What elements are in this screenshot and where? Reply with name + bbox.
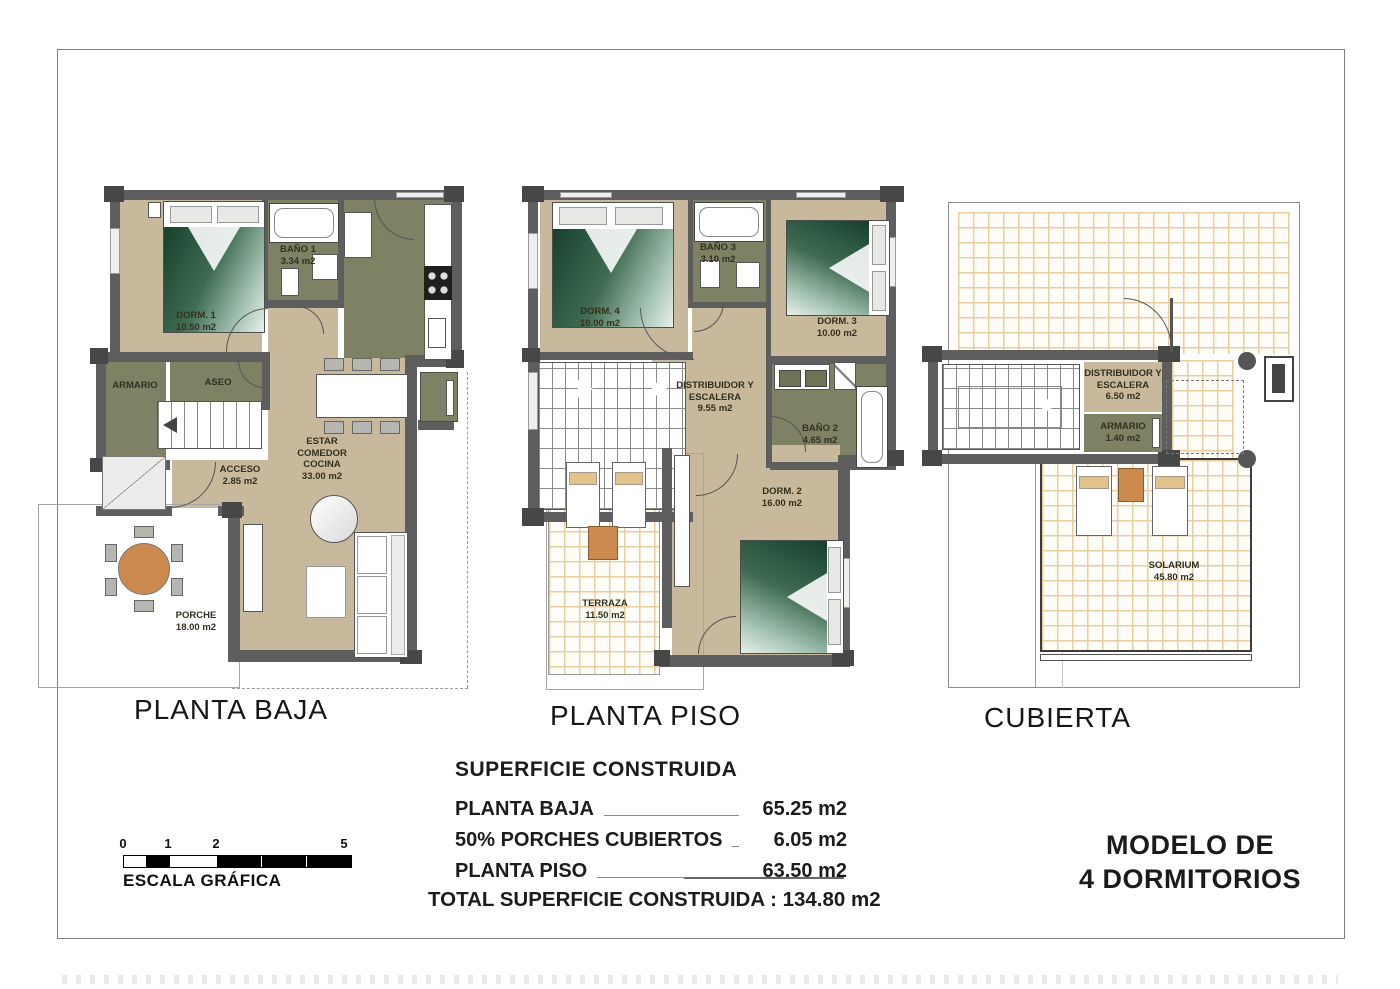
lounger-headrest: [1079, 476, 1109, 489]
room-name: ARMARIO: [1084, 421, 1162, 433]
chair: [171, 544, 183, 562]
solarium-tiled-floor: [1040, 458, 1252, 652]
room-name: DISTRIBUIDOR Y ESCALERA: [1082, 368, 1164, 391]
model-title-line1: MODELO DE: [1058, 828, 1322, 862]
wall: [766, 198, 771, 360]
bathtub-basin: [861, 391, 883, 463]
room-label-dorm4: DORM. 4 10.00 m2: [560, 306, 640, 329]
pillow: [872, 225, 886, 265]
room-area: 16.00 m2: [740, 498, 824, 510]
leader-line: [604, 815, 739, 816]
room-label-solarium: SOLARIUM 45.80 m2: [1128, 560, 1220, 583]
bathtub-basin: [699, 207, 759, 237]
room-label-bano3: BAÑO 3 3.10 m2: [684, 242, 752, 265]
rug: [306, 566, 346, 618]
round-table: [118, 543, 170, 595]
wall-corner: [444, 186, 464, 202]
wall: [928, 350, 1172, 360]
pillow: [559, 207, 607, 225]
room-label-estar: ESTAR COMEDOR COCINA 33.00 m2: [282, 436, 362, 482]
scale-tick-label: 5: [337, 836, 351, 851]
room-name: DISTRIBUIDOR Y ESCALERA: [670, 380, 760, 403]
entry-canopy: [102, 456, 166, 510]
sun-lounger-icon: [1152, 466, 1188, 536]
bathtub-icon: [694, 202, 764, 242]
room-name: DORM. 4: [560, 306, 640, 318]
room-name: DORM. 3: [796, 316, 878, 328]
ground-dashed-line: [232, 688, 468, 689]
wall: [452, 190, 462, 362]
sun-lounger-icon: [612, 462, 646, 528]
wall: [110, 190, 120, 362]
chair: [134, 600, 154, 612]
fridge-icon: [344, 212, 372, 258]
chair: [324, 421, 344, 434]
room-label-bano2: BAÑO 2 4.65 m2: [784, 423, 856, 446]
bed-fold: [829, 244, 869, 292]
room-label-armario: ARMARIO 1.40 m2: [1084, 421, 1162, 444]
room-name: DORM. 2: [740, 486, 824, 498]
model-title: MODELO DE 4 DORMITORIOS: [1058, 828, 1322, 896]
stair-direction-arrow: [163, 417, 177, 433]
room-area: 10.50 m2: [148, 322, 244, 334]
roof-edge-line: [1035, 460, 1036, 688]
room-name: PORCHE: [152, 610, 240, 622]
summary-row-label: 50% PORCHES CUBIERTOS: [455, 829, 722, 852]
pillow: [217, 206, 259, 223]
summary-total: TOTAL SUPERFICIE CONSTRUIDA : 134.80 m2: [428, 888, 881, 912]
room-name: BAÑO 1: [262, 244, 334, 256]
chair: [324, 358, 344, 371]
bathtub-icon: [856, 386, 888, 468]
vanity-double-sink: [774, 364, 830, 390]
wall-corner: [880, 186, 904, 202]
room-area: 10.00 m2: [560, 318, 640, 330]
pergola-dashed-outline: [1166, 380, 1244, 454]
lounger-headrest: [615, 472, 643, 485]
coffee-table: [310, 495, 358, 543]
room-label-distribuidor: DISTRIBUIDOR Y ESCALERA 9.55 m2: [670, 380, 760, 415]
sink-icon: [805, 370, 827, 387]
wall-corner: [922, 346, 942, 362]
wall-corner: [654, 650, 670, 666]
solarium-edge: [1040, 654, 1252, 661]
summary-header: SUPERFICIE CONSTRUIDA: [455, 758, 737, 782]
tv-unit: [243, 524, 263, 612]
room-area: 11.50 m2: [566, 610, 644, 622]
room-label-dorm2: DORM. 2 16.00 m2: [740, 486, 824, 509]
wall-corner: [522, 186, 544, 202]
sofa: [354, 532, 408, 658]
summary-row-value: 63.50 m2: [747, 860, 847, 883]
leader-line: [732, 846, 739, 847]
chair: [134, 526, 154, 538]
room-label-aseo: ASEO: [194, 377, 242, 389]
summary-row-label: PLANTA PISO: [455, 860, 587, 883]
sofa-back: [391, 535, 405, 655]
room-name: ARMARIO: [104, 380, 166, 392]
sun-lounger-icon: [1076, 466, 1112, 536]
plan-title-planta-baja: PLANTA BAJA: [134, 694, 328, 726]
room-area: 9.55 m2: [670, 403, 760, 415]
stair-direction-arrow: [652, 380, 667, 398]
wall: [228, 506, 240, 662]
chair: [105, 578, 117, 596]
room-label-dorm1: DORM. 1 10.50 m2: [148, 310, 244, 333]
summary-row-label: PLANTA BAJA: [455, 798, 594, 821]
wall: [766, 356, 896, 364]
scale-label: ESCALA GRÁFICA: [123, 871, 281, 891]
window-slot: [110, 228, 120, 274]
sofa-cushion: [357, 576, 387, 614]
chair: [352, 358, 372, 371]
chair: [171, 578, 183, 596]
roof-post: [1238, 352, 1256, 370]
room-label-acceso: ACCESO 2.85 m2: [198, 464, 282, 487]
room-area: 45.80 m2: [1128, 572, 1220, 584]
wall: [662, 448, 672, 628]
room-name: BAÑO 2: [784, 423, 856, 435]
room-area: 18.00 m2: [152, 622, 240, 634]
room-name: ACCESO: [198, 464, 282, 476]
scale-segment: [217, 856, 351, 867]
scale-tick: [261, 856, 262, 867]
room-name: ESTAR COMEDOR COCINA: [282, 436, 362, 471]
exterior-closet-door: [446, 380, 454, 416]
washer-icon: [834, 362, 856, 390]
bed-fold: [787, 573, 827, 621]
wall: [660, 655, 850, 667]
scale-segment: [169, 856, 217, 867]
plan-title-cubierta: CUBIERTA: [984, 702, 1131, 734]
bed-icon: [786, 220, 890, 316]
room-area: 10.00 m2: [796, 328, 878, 340]
room-label-terraza: TERRAZA 11.50 m2: [566, 598, 644, 621]
wall-corner: [522, 508, 544, 526]
room-name: ASEO: [194, 377, 242, 389]
wall-corner: [522, 348, 540, 362]
solar-panel-icon: [1264, 356, 1294, 402]
summary-row: 50% PORCHES CUBIERTOS 6.05 m2: [455, 821, 847, 852]
room-area: 3.10 m2: [684, 254, 752, 266]
nightstand: [148, 202, 161, 218]
scale-tick: [306, 856, 307, 867]
room-label-dorm3: DORM. 3 10.00 m2: [796, 316, 878, 339]
room-area: 33.00 m2: [282, 471, 362, 483]
bathtub-icon: [269, 203, 339, 243]
sink-icon: [736, 262, 760, 288]
chair: [380, 358, 400, 371]
scale-tick-label: 1: [161, 836, 175, 851]
room-area: 4.65 m2: [784, 435, 856, 447]
wall-corner: [90, 348, 108, 364]
pillow: [828, 599, 841, 645]
scale-tick-label: 2: [209, 836, 223, 851]
dining-table: [316, 374, 408, 418]
solar-panel-cell: [1272, 364, 1285, 393]
summary-row: PLANTA BAJA 65.25 m2: [455, 790, 847, 821]
bathtub-basin: [274, 208, 334, 238]
wall-corner: [222, 502, 242, 518]
sofa-cushion: [357, 616, 387, 654]
bed-fold: [585, 229, 637, 273]
room-area: 1.40 m2: [1084, 433, 1162, 445]
bed-icon: [740, 540, 844, 654]
scale-segment: [124, 856, 146, 867]
scale-segment: [146, 856, 169, 867]
wall: [96, 352, 106, 470]
stair-direction-arrow: [578, 380, 593, 398]
scan-noise: [62, 975, 1338, 984]
window-slot: [560, 192, 612, 198]
kitchen-sink-icon: [428, 318, 446, 348]
summary-row-value: 6.05 m2: [747, 829, 847, 852]
room-label-porche: PORCHE 18.00 m2: [152, 610, 240, 633]
door-leaf: [1170, 298, 1173, 352]
scale-bar: [123, 855, 352, 868]
window-slot: [528, 233, 538, 289]
wall: [928, 350, 938, 464]
chair: [105, 544, 117, 562]
wardrobe-panel: [674, 455, 690, 587]
stove-icon: [424, 266, 452, 300]
plan-title-planta-piso: PLANTA PISO: [550, 700, 741, 732]
sofa-cushion: [357, 536, 387, 574]
room-name: DORM. 1: [148, 310, 244, 322]
room-name: SOLARIUM: [1128, 560, 1220, 572]
room-name: TERRAZA: [566, 598, 644, 610]
window-slot: [528, 372, 538, 430]
room-area: 3.34 m2: [262, 256, 334, 268]
room-label-distribuidor: DISTRIBUIDOR Y ESCALERA 6.50 m2: [1082, 368, 1164, 403]
wall-corner: [922, 450, 942, 466]
window-slot: [796, 192, 846, 198]
room-name: BAÑO 3: [684, 242, 752, 254]
pillow: [170, 206, 212, 223]
summary-total-rule: [684, 877, 844, 879]
solarium-table: [1118, 468, 1144, 502]
overhang-dashed-line: [467, 372, 468, 688]
floor-plan-sheet: DORM. 1 10.50 m2 BAÑO 1 3.34 m2 ARMARIO …: [0, 0, 1400, 989]
scale-tick-label: 0: [116, 836, 130, 851]
model-title-line2: 4 DORMITORIOS: [1058, 862, 1322, 896]
wall-corner: [104, 186, 124, 202]
wall: [928, 454, 1172, 464]
summary-rows: PLANTA BAJA 65.25 m2 50% PORCHES CUBIERT…: [455, 790, 847, 883]
lounger-headrest: [569, 472, 597, 485]
bed-fold: [188, 227, 240, 271]
room-area: 2.85 m2: [198, 476, 282, 488]
sun-lounger-icon: [566, 462, 600, 528]
lounger-headrest: [1155, 476, 1185, 489]
chair: [352, 421, 372, 434]
chair: [380, 421, 400, 434]
sink-icon: [779, 370, 801, 387]
terrace-table: [588, 526, 618, 560]
room-label-bano1: BAÑO 1 3.34 m2: [262, 244, 334, 267]
pillow: [828, 547, 841, 593]
stair-direction-arrow: [1042, 396, 1057, 414]
summary-row-value: 65.25 m2: [747, 798, 847, 821]
pillow: [872, 271, 886, 311]
room-label-armario: ARMARIO: [104, 380, 166, 392]
toilet-icon: [281, 268, 299, 296]
pillow: [615, 207, 663, 225]
room-area: 6.50 m2: [1082, 391, 1164, 403]
